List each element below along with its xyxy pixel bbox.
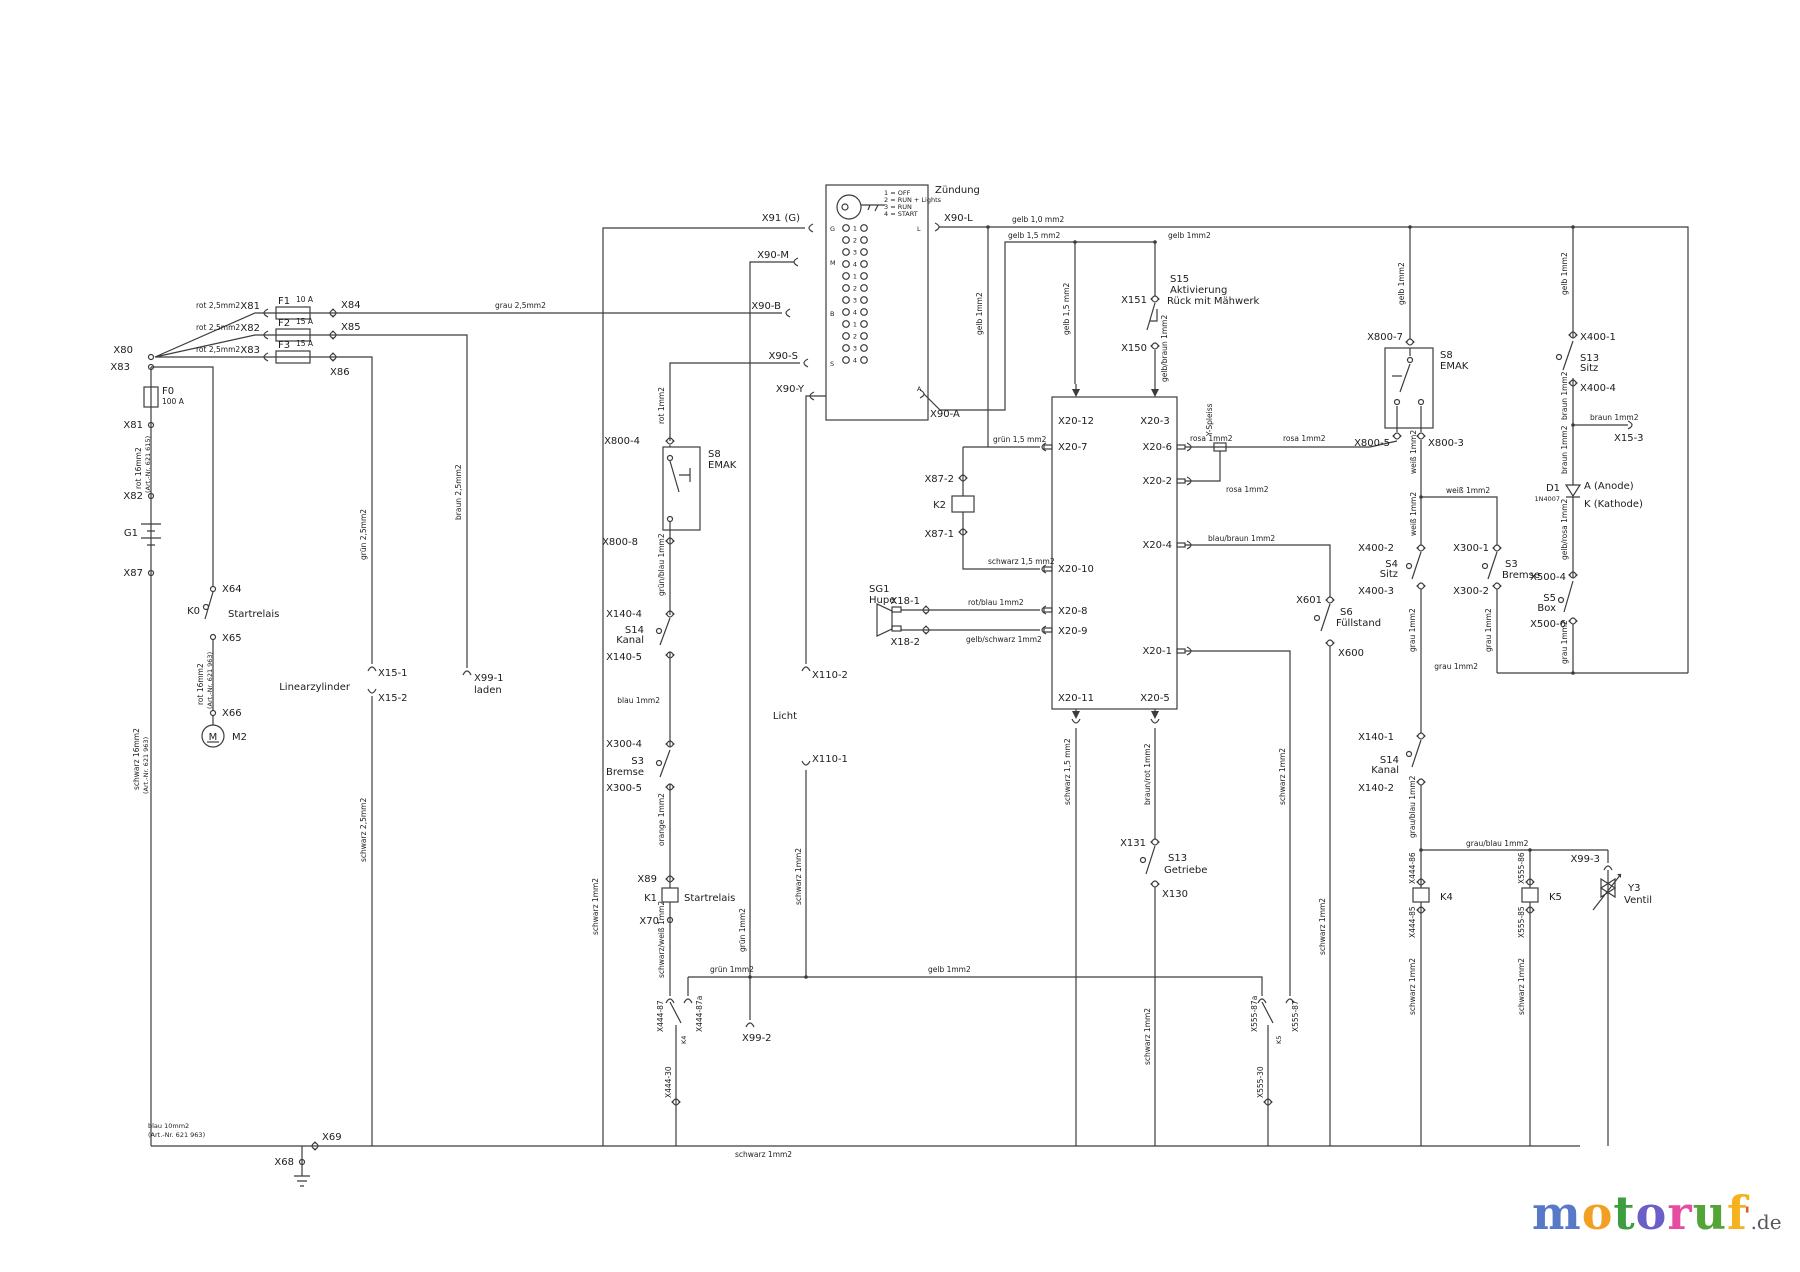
label-getriebe: Getriebe	[1164, 865, 1207, 876]
label-x69: X69	[322, 1132, 342, 1143]
ignition-pin-number: 2	[853, 285, 857, 293]
label-k5s: K5	[1275, 1036, 1283, 1044]
logo-suffix: .de	[1751, 1210, 1782, 1234]
label-r2x: X82	[240, 323, 260, 334]
label-w_rtbl1: rot/blau 1mm2	[968, 598, 1024, 607]
label-x140_1: X140-1	[1358, 732, 1394, 743]
label-x65: X65	[222, 633, 242, 644]
label-f0: F0	[162, 386, 174, 397]
label-x400_2: X400-2	[1358, 543, 1394, 554]
label-x500_4: X500-4	[1530, 572, 1566, 583]
label-x84: X84	[341, 300, 361, 311]
label-w_rosa1c: rosa 1mm2	[1226, 485, 1269, 494]
label-w_gruen1_h: grün 1mm2	[710, 965, 754, 974]
label-x89: X89	[637, 874, 657, 885]
label-x800_5: X800-5	[1354, 438, 1390, 449]
label-x400_3: X400-3	[1358, 586, 1394, 597]
label-x555_87: X555-87	[1291, 1000, 1300, 1032]
label-ts: S	[830, 360, 834, 368]
label-w_sw15: schwarz 1,5 mm2	[988, 557, 1055, 566]
label-zuendung: Zündung	[935, 185, 980, 196]
label-s13g: S13	[1168, 853, 1187, 864]
label-licht: Licht	[773, 711, 797, 722]
label-tl: L	[917, 225, 921, 233]
label-k1n: Startrelais	[684, 893, 735, 904]
label-x400_4: X400-4	[1580, 383, 1616, 394]
label-x300_1: X300-1	[1453, 543, 1489, 554]
valve-icon	[1593, 874, 1621, 910]
label-w_weiss1b: weiß 1mm2	[1446, 486, 1490, 495]
logo-letter: u	[1693, 1186, 1727, 1240]
label-x87_1: X87-1	[924, 529, 954, 540]
label-x555_86: X555-86	[1517, 852, 1526, 884]
ignition-pin-number: 4	[853, 261, 857, 269]
label-w_braun1b: braun 1mm2	[1590, 413, 1639, 422]
label-x86: X86	[330, 367, 350, 378]
label-fuell: Füllstand	[1336, 618, 1381, 629]
label-w_sw15b: schwarz 1,5 mm2	[1063, 738, 1072, 805]
ignition-pin-number: 1	[853, 273, 857, 281]
label-w_schw1_k4c: schwarz 1mm2	[1408, 958, 1417, 1015]
label-y3: Y3	[1627, 883, 1640, 894]
label-x20_5: X20-5	[1140, 693, 1170, 704]
label-x99_2: X99-2	[742, 1033, 772, 1044]
label-x15_3: X15-3	[1614, 433, 1644, 444]
label-d1t: 1N4007	[1534, 495, 1560, 503]
label-k4: K4	[1440, 892, 1453, 903]
label-x140_5: X140-5	[606, 652, 642, 663]
label-f2a: 15 A	[296, 317, 314, 326]
label-x81: X81	[123, 420, 143, 431]
label-kanall: Kanal	[616, 635, 644, 646]
label-g1: G1	[124, 528, 138, 539]
label-w_schw1_g: schwarz 1mm2	[1143, 1008, 1152, 1065]
label-r3w: rot 2,5mm2	[196, 345, 240, 354]
label-w_rot16_615a: rot 16mm2	[134, 447, 143, 489]
label-w_gruen25: grün 2,5mm2	[359, 509, 368, 560]
label-x90s: X90-S	[768, 351, 798, 362]
label-w_schw16b: (Art.-Nr. 621 963)	[142, 737, 150, 794]
label-w_gelb1c: gelb 1mm2	[1397, 262, 1406, 305]
ignition-pin-number: 3	[853, 249, 857, 257]
label-w_or1: orange 1mm2	[657, 793, 666, 846]
label-f3: F3	[278, 340, 290, 351]
logo-letter: m	[1532, 1186, 1582, 1240]
label-leg4: 4 = START	[884, 210, 918, 218]
label-w_gelb1a: gelb 1mm2	[1168, 231, 1211, 240]
logo-mark: '	[1744, 1203, 1751, 1229]
label-f1a: 10 A	[296, 295, 314, 304]
label-x20_8: X20-8	[1058, 606, 1088, 617]
label-tm: M	[830, 259, 836, 267]
label-w_schw1_k5c: schwarz 1mm2	[1517, 958, 1526, 1015]
label-d1: D1	[1546, 483, 1560, 494]
label-s15b: Aktivierung	[1170, 285, 1227, 296]
label-x90l: X90-L	[944, 213, 973, 224]
label-x555_87a: X555-87a	[1250, 996, 1259, 1032]
label-x140_2: X140-2	[1358, 783, 1394, 794]
relay-k2-coil	[952, 496, 974, 512]
label-x800_7: X800-7	[1367, 332, 1403, 343]
label-x600: X600	[1338, 648, 1364, 659]
label-w_grau1d: grau 1mm2	[1484, 608, 1493, 652]
label-x20_7: X20-7	[1058, 442, 1088, 453]
logo-wordmark: motoruf	[1532, 1214, 1748, 1233]
label-x110_1: X110-1	[812, 754, 848, 765]
wiring-diagram: 123412341234 Zündung1 = OFF2 = RUN + Lig…	[0, 0, 1800, 1272]
label-w_rot1: rot 1mm2	[657, 387, 666, 424]
label-x20_2: X20-2	[1142, 476, 1172, 487]
relay-k1-coil	[662, 888, 678, 902]
label-w_gruen1_v: grün 1mm2	[738, 908, 747, 952]
label-tb: B	[830, 310, 834, 318]
label-w_gbbr1: gelb/braun 1mm2	[1160, 315, 1169, 382]
label-s3r: S3	[1505, 559, 1518, 570]
label-x444_87: X444-87	[656, 1000, 665, 1032]
schematic-page: 123412341234 Zündung1 = OFF2 = RUN + Lig…	[0, 0, 1800, 1272]
label-x300_2: X300-2	[1453, 586, 1489, 597]
label-x444_87a: X444-87a	[695, 996, 704, 1032]
label-x15_2: X15-2	[378, 693, 408, 704]
ignition-pin-number: 4	[853, 309, 857, 317]
label-w_weiss1a: weiß 1mm2	[1409, 430, 1418, 474]
label-w_gelb1d: gelb 1mm2	[1560, 252, 1569, 295]
ignition-key-icon	[837, 195, 885, 219]
label-x444_86: X444-86	[1408, 852, 1417, 884]
label-x68: X68	[274, 1157, 294, 1168]
label-kanalr: Kanal	[1371, 765, 1399, 776]
label-w_swws1: schwarz/weiß 1mm2	[657, 901, 666, 978]
label-f2: F2	[278, 318, 290, 329]
label-x110_2: X110-2	[812, 670, 848, 681]
label-x90m: X90-M	[757, 250, 789, 261]
label-linz: Linearzylinder	[279, 682, 351, 693]
label-r2w: rot 2,5mm2	[196, 323, 240, 332]
label-f1: F1	[278, 296, 290, 307]
label-x15_1: X15-1	[378, 668, 408, 679]
logo-letter: o	[1582, 1186, 1614, 1240]
label-w_rot16_963a: rot 16mm2	[196, 663, 205, 705]
label-x400_1: X400-1	[1580, 332, 1616, 343]
label-w_gn15: grün 1,5 mm2	[993, 435, 1047, 444]
label-w_schw1_bus: schwarz 1mm2	[735, 1150, 792, 1159]
label-x80: X80	[113, 345, 133, 356]
label-s8r: S8	[1440, 350, 1453, 361]
label-w_braun1a: braun 1mm2	[1560, 371, 1569, 420]
label-x800_4: X800-4	[604, 436, 640, 447]
label-ta: A	[917, 385, 922, 393]
label-w_weiss1c: weiß 1mm2	[1409, 492, 1418, 536]
label-k1: K1	[644, 893, 657, 904]
label-box5: Box	[1537, 603, 1556, 614]
label-x90y: X90-Y	[776, 384, 805, 395]
label-mm: M	[209, 732, 218, 743]
label-w_gelb10: gelb 1,0 mm2	[1012, 215, 1065, 224]
label-x20_11: X20-11	[1058, 693, 1094, 704]
label-r3x: X83	[240, 345, 260, 356]
label-x99_3: X99-3	[1570, 854, 1600, 865]
ignition-pin-number: 2	[853, 237, 857, 245]
diode-icon	[1566, 482, 1580, 497]
label-r1w: rot 2,5mm2	[196, 301, 240, 310]
label-k0: K0	[187, 606, 200, 617]
label-w_blbr1: blau/braun 1mm2	[1208, 534, 1275, 543]
ignition-pin-number: 2	[853, 333, 857, 341]
label-x131: X131	[1120, 838, 1146, 849]
label-w_rot16_963b: (Art.-Nr. 621 963)	[206, 652, 214, 709]
label-ventil: Ventil	[1624, 895, 1652, 906]
label-bremsel: Bremse	[606, 767, 644, 778]
label-x800_3: X800-3	[1428, 438, 1464, 449]
label-s8l: S8	[708, 449, 721, 460]
label-r1x: X81	[240, 301, 260, 312]
label-x800_8: X800-8	[602, 537, 638, 548]
label-x91g: X91 (G)	[762, 213, 800, 224]
ignition-pin-number: 4	[853, 357, 857, 365]
label-w_braun25: braun 2,5mm2	[454, 464, 463, 520]
label-w_rosa1b: rosa 1mm2	[1283, 434, 1326, 443]
label-laden: laden	[474, 685, 502, 696]
label-w_gelb15a: gelb 1,5 mm2	[1008, 231, 1061, 240]
label-x140_4: X140-4	[606, 609, 642, 620]
label-w_gnbl1: grün/blau 1mm2	[657, 533, 666, 596]
horn-icon	[877, 604, 906, 636]
label-emakr: EMAK	[1440, 361, 1469, 372]
ignition-pin-number: 1	[853, 321, 857, 329]
label-x20_10: X20-10	[1058, 564, 1094, 575]
label-k4s: K4	[680, 1036, 688, 1044]
label-w_brrt1: braun/rot 1mm2	[1143, 743, 1152, 805]
label-x99_1: X99-1	[474, 673, 504, 684]
label-x18_2: X18-2	[890, 637, 920, 648]
emak-switch-right-box	[1385, 348, 1433, 428]
label-sitz13: Sitz	[1580, 363, 1598, 374]
ground-icon	[294, 1176, 310, 1186]
label-w_rot16_615b: (Art.-Nr. 621 615)	[144, 436, 152, 493]
label-w_schw25: schwarz 2,5mm2	[359, 798, 368, 862]
label-w_gelb1b: gelb 1mm2	[975, 292, 984, 335]
label-w_gbrs1: gelb/rosa 1mm2	[1560, 498, 1569, 560]
label-w_gelb1_h: gelb 1mm2	[928, 965, 971, 974]
label-w_schw1_r: schwarz 1mm2	[794, 848, 803, 905]
logo-letter: o	[1636, 1186, 1668, 1240]
label-x87: X87	[123, 568, 143, 579]
label-w_schw1_l: schwarz 1mm2	[591, 878, 600, 935]
flow-arrows	[1072, 389, 1621, 878]
label-tg: G	[830, 225, 835, 233]
label-w_grau1c: grau 1mm2	[1408, 608, 1417, 652]
label-w_grbl1b: grau/blau 1mm2	[1466, 839, 1529, 848]
connector-marks: 123412341234	[264, 223, 1632, 1150]
label-w_grau1b: grau 1mm2	[1434, 662, 1478, 671]
label-x20_9: X20-9	[1058, 626, 1088, 637]
label-x601: X601	[1296, 595, 1322, 606]
label-x90b: X90-B	[751, 301, 781, 312]
label-x20_1: X20-1	[1142, 646, 1172, 657]
label-x150: X150	[1121, 343, 1147, 354]
label-w_blau10b: (Art.-Nr. 621 963)	[148, 1131, 205, 1139]
ignition-switch-box	[826, 185, 928, 420]
label-w_schw1_s6: schwarz 1mm2	[1318, 898, 1327, 955]
label-f3a: 15 A	[296, 339, 314, 348]
logo-letter: r	[1667, 1186, 1692, 1240]
label-w_schw1_x201: schwarz 1mm2	[1278, 748, 1287, 805]
label-x130: X130	[1162, 889, 1188, 900]
ignition-pin-number: 3	[853, 345, 857, 353]
label-x66: X66	[222, 708, 242, 719]
label-x87_2: X87-2	[924, 474, 954, 485]
label-x85: X85	[341, 322, 361, 333]
label-emakl: EMAK	[708, 460, 737, 471]
label-w_grau1a: grau 1mm2	[1560, 620, 1569, 664]
label-x151: X151	[1121, 295, 1147, 306]
label-w_blau10: blau 10mm2	[148, 1122, 189, 1130]
label-x20_4: X20-4	[1142, 540, 1172, 551]
label-x444_30: X444-30	[664, 1066, 673, 1098]
label-w_gelb15b: gelb 1,5 mm2	[1062, 282, 1071, 335]
label-w_blau1: blau 1mm2	[617, 696, 660, 705]
label-x20_6: X20-6	[1142, 442, 1172, 453]
label-x300_4: X300-4	[606, 739, 642, 750]
label-x555_85: X555-85	[1517, 906, 1526, 938]
label-s3l: S3	[631, 756, 644, 767]
label-s15c: Rück mit Mähwerk	[1167, 296, 1259, 307]
label-anode: A (Anode)	[1584, 481, 1634, 492]
label-w_grbl1a: grau/blau 1mm2	[1408, 775, 1417, 838]
label-w_schw16a: schwarz 16mm2	[132, 728, 141, 790]
label-x555_30: X555-30	[1256, 1066, 1265, 1098]
relay-k5-coil	[1522, 888, 1538, 902]
logo-letter: t	[1613, 1186, 1635, 1240]
label-x83: X83	[110, 362, 130, 373]
label-w_grau25: grau 2,5mm2	[495, 301, 546, 310]
label-s15: S15	[1170, 274, 1189, 285]
label-x20_3: X20-3	[1140, 416, 1170, 427]
ignition-pin-number: 3	[853, 297, 857, 305]
label-w_braun1c: braun 1mm2	[1560, 425, 1569, 474]
label-x64: X64	[222, 584, 242, 595]
label-x82: X82	[123, 491, 143, 502]
label-f0a: 100 A	[162, 397, 185, 406]
label-x90a: X90-A	[930, 409, 960, 420]
label-sitz4: Sitz	[1380, 569, 1398, 580]
label-x444_85: X444-85	[1408, 906, 1417, 938]
label-x20_12: X20-12	[1058, 416, 1094, 427]
label-yspl: Y-Spleiss	[1205, 403, 1214, 437]
label-w_gbsw1: gelb/schwarz 1mm2	[966, 635, 1042, 644]
label-k5: K5	[1549, 892, 1562, 903]
label-s6: S6	[1340, 607, 1353, 618]
relay-k4-coil	[1413, 888, 1429, 902]
label-sg1: SG1	[869, 584, 889, 595]
ignition-pin-number: 1	[853, 225, 857, 233]
label-k0n: Startrelais	[228, 609, 279, 620]
label-k2: K2	[933, 500, 946, 511]
label-kathode: K (Kathode)	[1584, 499, 1643, 510]
label-m2: M2	[232, 732, 247, 743]
label-x18_1: X18-1	[890, 596, 920, 607]
label-x300_5: X300-5	[606, 783, 642, 794]
motoruf-logo: motoruf'.de	[1532, 1186, 1782, 1240]
